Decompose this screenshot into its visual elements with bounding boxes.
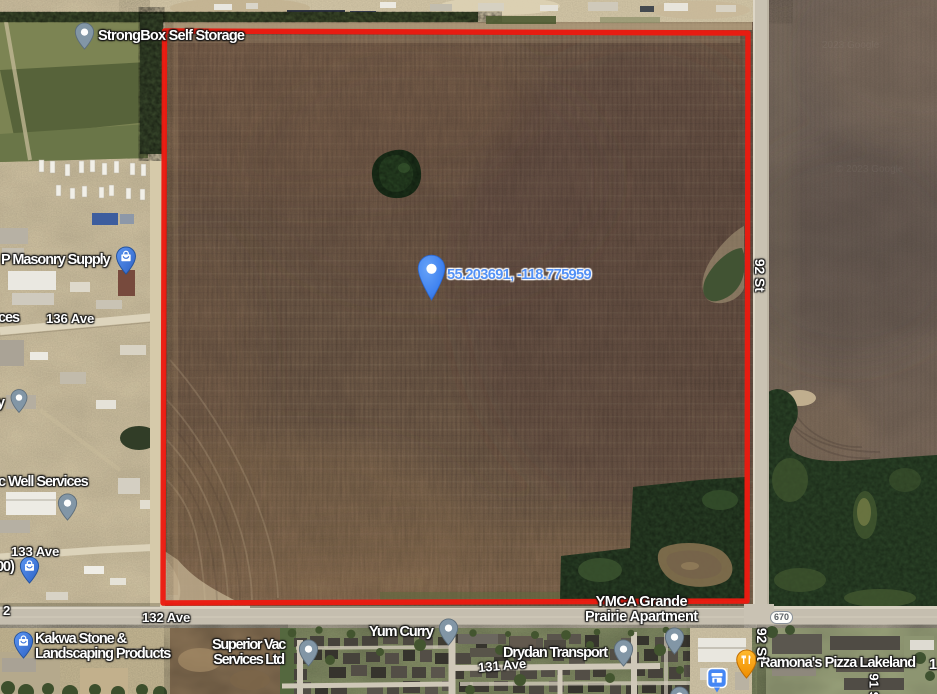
svg-text:2023 Google: 2023 Google (822, 40, 880, 51)
svg-text:© 2023 Google: © 2023 Google (836, 164, 904, 175)
